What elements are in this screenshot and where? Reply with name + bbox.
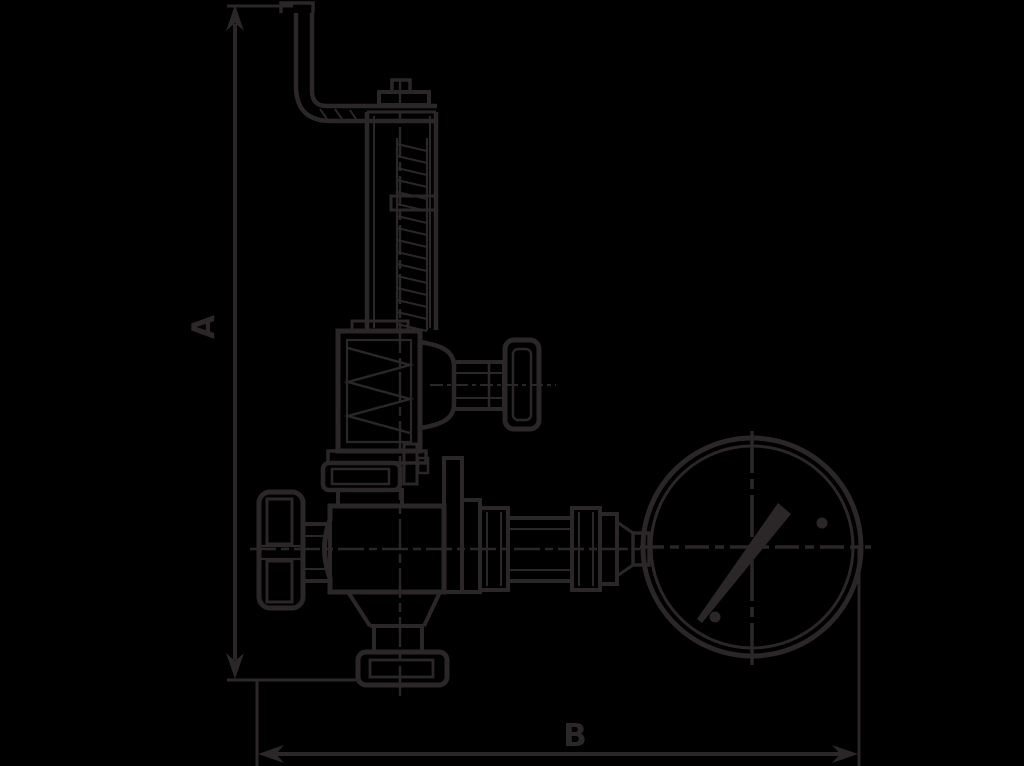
- outlet-flange-plate: [444, 458, 462, 592]
- pressure-gauge: [640, 431, 871, 668]
- centerlines: [250, 78, 640, 700]
- lever-end-cap: [281, 3, 313, 13]
- body-bottom-taper: [348, 592, 440, 626]
- outlet-neck: [374, 626, 422, 652]
- stem-cap: [379, 80, 429, 105]
- gland-nut-inner: [332, 469, 389, 484]
- stem-thread-hatching: [397, 144, 427, 331]
- side-test-valve: [420, 340, 556, 429]
- bonnet-threaded-stem: [367, 112, 436, 331]
- spring-housing: [338, 321, 420, 451]
- lever-hatch-marks: [320, 109, 356, 119]
- handwheel-spoke-upper: [267, 499, 292, 544]
- dimension-b-label: B: [563, 718, 587, 754]
- gauge-dial-dot-right: [817, 518, 828, 529]
- gauge-dial-dot-left: [710, 612, 721, 623]
- dimension-a-label: A: [186, 315, 222, 339]
- bottom-flange-inner: [370, 660, 433, 677]
- drawing-canvas: A B: [0, 0, 1024, 766]
- gauge-needle: [697, 503, 791, 623]
- handwheel-spoke-lower: [267, 561, 292, 602]
- valve-technical-drawing: A B: [0, 0, 1024, 766]
- outlet-flange-plate2: [462, 500, 480, 592]
- cap-washer: [379, 92, 429, 105]
